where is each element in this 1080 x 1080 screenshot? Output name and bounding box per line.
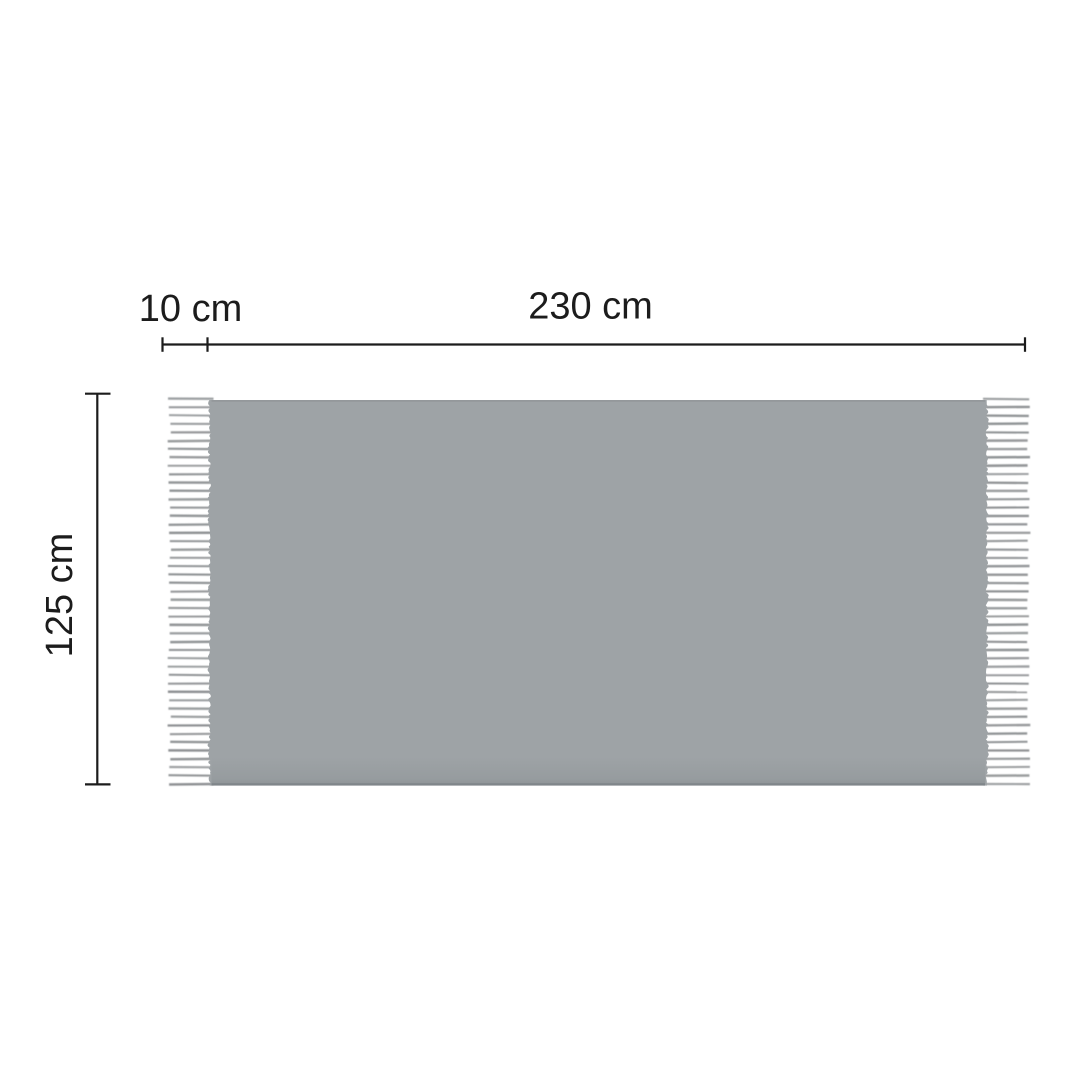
svg-text:125 cm: 125 cm: [39, 533, 81, 658]
svg-text:10 cm: 10 cm: [139, 288, 242, 330]
svg-text:230 cm: 230 cm: [528, 286, 653, 328]
